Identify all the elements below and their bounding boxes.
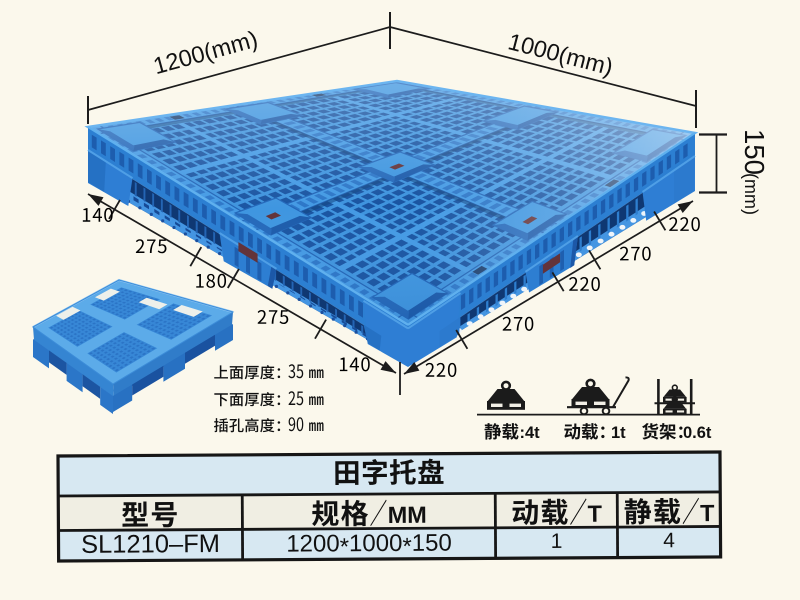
svg-text:T: T (700, 500, 715, 526)
svg-text:(mm): (mm) (741, 173, 761, 215)
svg-text:MM: MM (388, 502, 427, 528)
svg-text:1t: 1t (611, 424, 626, 442)
svg-text:T: T (587, 501, 602, 527)
svg-text:0.6t: 0.6t (683, 424, 712, 442)
svg-text::4t: :4t (520, 424, 541, 442)
svg-text:SL1210–FM: SL1210–FM (81, 530, 220, 559)
svg-text:1200*1000*150: 1200*1000*150 (286, 530, 452, 562)
svg-text:4: 4 (663, 529, 675, 552)
svg-text:1: 1 (551, 530, 563, 553)
svg-text:150: 150 (739, 129, 770, 175)
